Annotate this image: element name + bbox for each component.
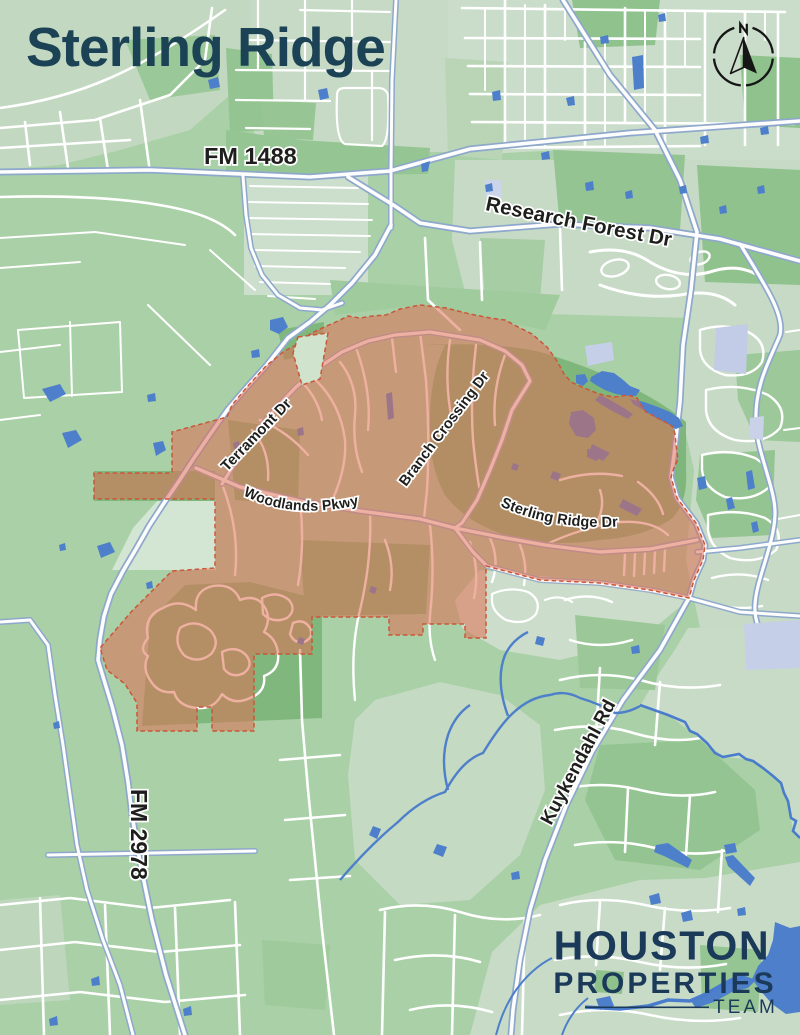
svg-text:FM 1488: FM 1488: [204, 143, 297, 169]
svg-text:PROPERTIES: PROPERTIES: [553, 967, 776, 1000]
svg-text:TEAM: TEAM: [713, 997, 778, 1018]
svg-text:FM 2978: FM 2978: [126, 789, 152, 880]
svg-text:HOUSTON: HOUSTON: [554, 923, 771, 969]
svg-text:Sterling Ridge: Sterling Ridge: [26, 16, 385, 78]
